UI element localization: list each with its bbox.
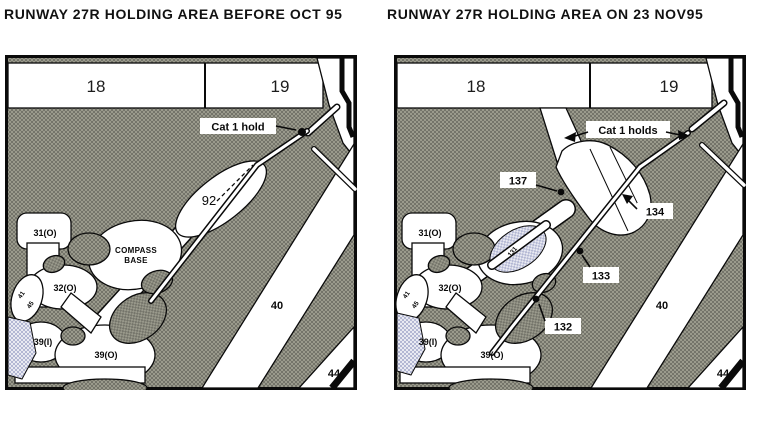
hold-point-133	[577, 248, 584, 255]
cat1-hold-point	[298, 128, 306, 136]
stand-32o-label: 32(O)	[438, 283, 461, 293]
taxiway-44-label: 44	[328, 368, 341, 380]
block-19-label: 19	[660, 77, 679, 96]
block-18-label: 18	[467, 77, 486, 96]
hold-134-label: 134	[646, 207, 665, 219]
stand-31o-label: 31(O)	[33, 228, 56, 238]
taxiway-40-label: 40	[271, 300, 283, 312]
pavement-island	[68, 233, 110, 265]
stand-39o-label: 39(O)	[94, 350, 117, 360]
stand-39o-label: 39(O)	[480, 350, 503, 360]
cat1-hold-label: Cat 1 hold	[211, 122, 264, 134]
pavement-island	[446, 327, 470, 345]
taxiway-44-label: 44	[717, 368, 730, 380]
hold-point-132	[533, 296, 540, 303]
stand-31o-label: 31(O)	[418, 228, 441, 238]
holding-area-92-label: 92	[202, 193, 216, 208]
stand-32o-label: 32(O)	[53, 283, 76, 293]
stand-39i-label: 39(I)	[34, 337, 53, 347]
compass-base-label-1: COMPASS	[115, 246, 157, 255]
hold-133-label: 133	[592, 271, 610, 283]
block-18-label: 18	[87, 77, 106, 96]
before-map-diagram: Cat 1 hold 18 19 92 COMPASS BASE 31(O) 3…	[5, 55, 357, 390]
block-19-label: 19	[271, 77, 290, 96]
pavement-island	[61, 327, 85, 345]
stand-39i-label: 39(I)	[419, 337, 438, 347]
title-before-oct95: RUNWAY 27R HOLDING AREA BEFORE OCT 95	[4, 6, 343, 22]
compass-base-label-2: BASE	[124, 256, 148, 265]
hold-137-label: 137	[509, 176, 527, 188]
taxiway-40-label: 40	[656, 300, 668, 312]
hold-132-label: 132	[554, 322, 572, 334]
pavement-island	[453, 233, 495, 265]
cat1-holds-label: Cat 1 holds	[598, 125, 657, 137]
after-map-diagram: Cat 1 holds 137 134 133 132 18 19 31(O) …	[394, 55, 746, 390]
title-on-23-nov95: RUNWAY 27R HOLDING AREA ON 23 NOV95	[387, 6, 703, 22]
hold-137-point	[558, 189, 565, 196]
